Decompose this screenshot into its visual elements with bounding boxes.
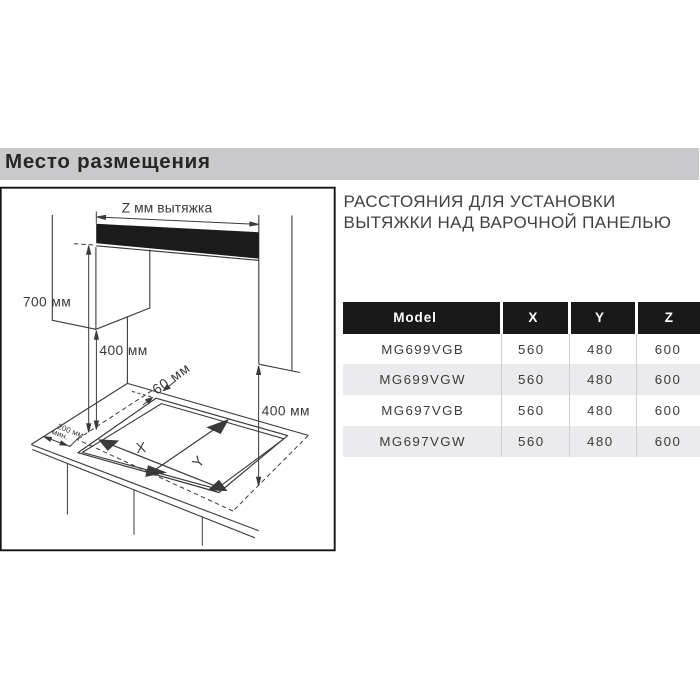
svg-text:700 мм: 700 мм — [23, 295, 71, 310]
svg-text:400 мм: 400 мм — [262, 403, 310, 418]
svg-text:60 мм: 60 мм — [149, 359, 193, 397]
svg-text:X: X — [135, 440, 147, 457]
svg-text:400 мм: 400 мм — [99, 343, 147, 358]
svg-text:Y: Y — [190, 453, 209, 471]
svg-text:Z мм вытяжка: Z мм вытяжка — [122, 200, 213, 215]
